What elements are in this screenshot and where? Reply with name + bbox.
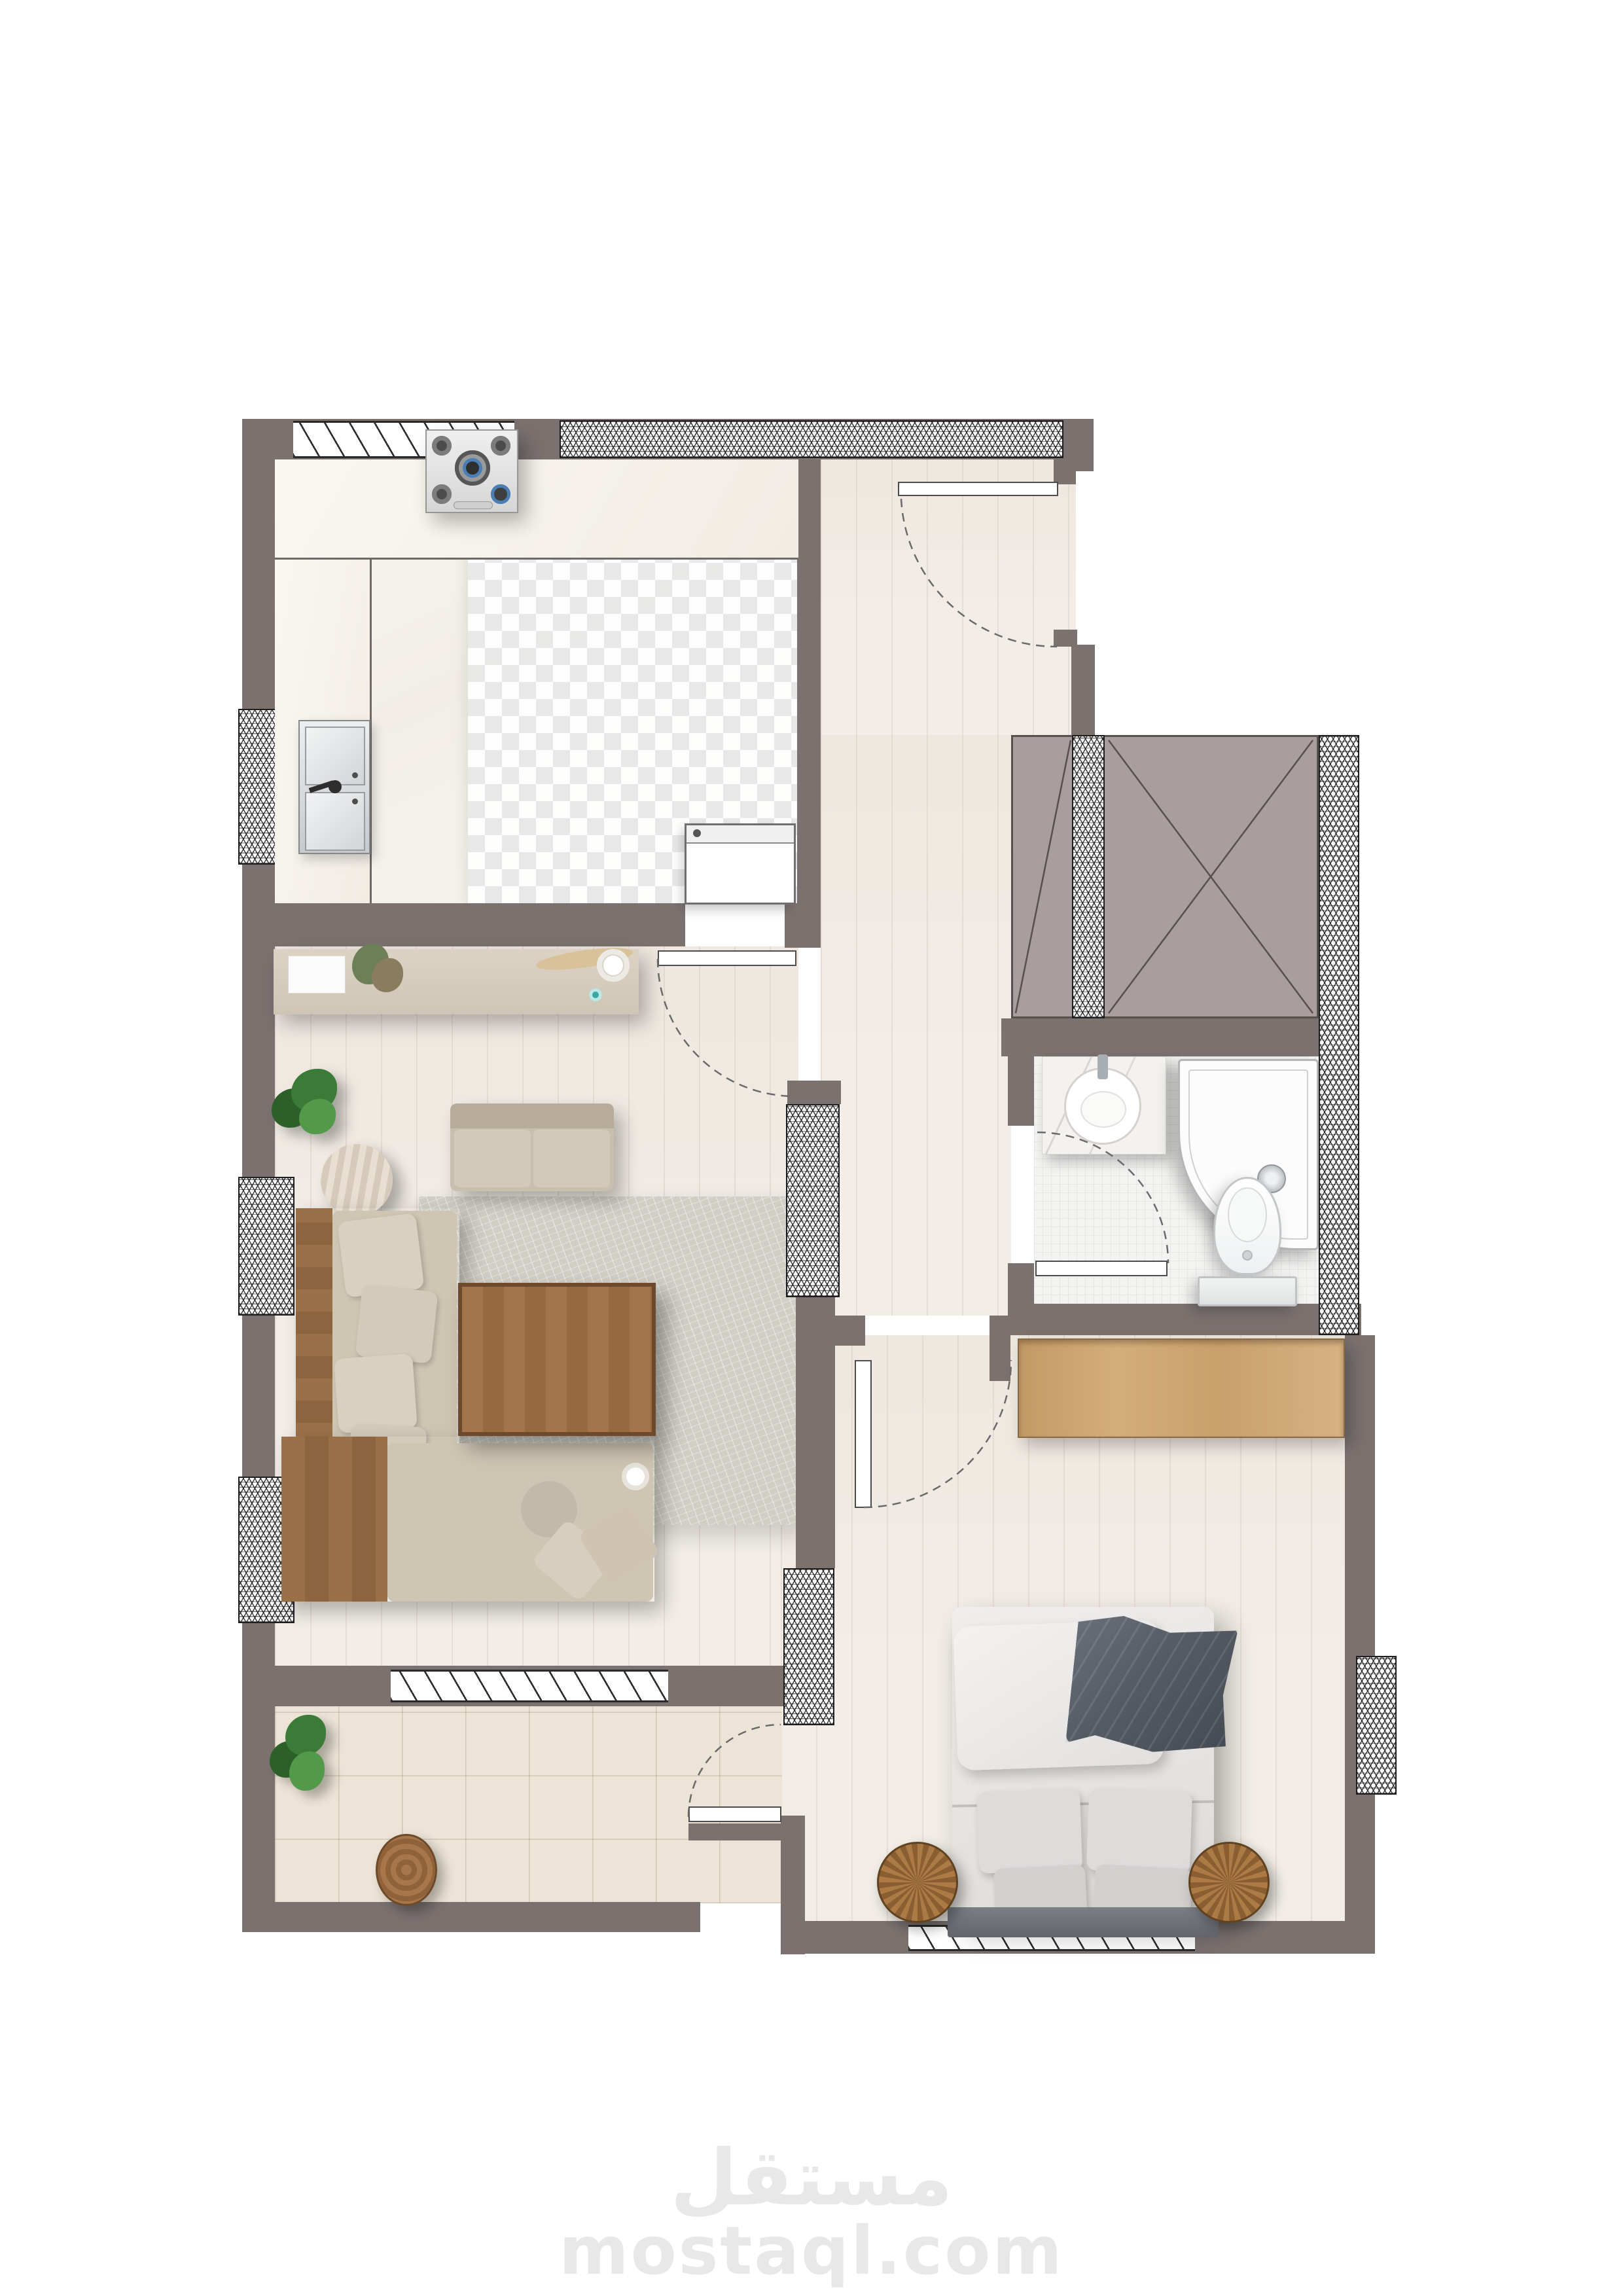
kitchen-appliance [685, 823, 796, 905]
bedroom-door-leaf [855, 1360, 872, 1508]
bed-base-headboard [948, 1907, 1219, 1937]
console-plate-icon [597, 949, 630, 982]
stove-burner-blue-icon [491, 484, 510, 504]
elevator-shaft [1011, 735, 1319, 1018]
balcony-plant [270, 1715, 329, 1806]
appliance-handle-icon [693, 829, 701, 837]
wall-living-bedroom-separator [796, 1346, 835, 1568]
plant-leaves-icon [289, 1751, 325, 1791]
loveseat-cushion [533, 1130, 610, 1187]
loveseat-sofa [450, 1103, 614, 1191]
wall-kitchen-door-jamb [785, 903, 821, 948]
hatch-shaft-middle-column [1072, 735, 1105, 1018]
loveseat-cushion [454, 1130, 531, 1187]
stove-control-strip [454, 501, 493, 509]
nightstand-right [1188, 1842, 1270, 1923]
wall-kitchen-door-stop [787, 1081, 841, 1104]
wall-entry-stub [1071, 645, 1095, 736]
bed-pillow [976, 1789, 1082, 1873]
kitchen-stove [425, 429, 518, 513]
sofa-cup-icon [622, 1463, 649, 1490]
watermark-domain: mostaql.com [0, 2216, 1623, 2286]
stove-burner-icon [432, 484, 452, 504]
hallway-floor-lower [821, 735, 1011, 1316]
stove-center-burner-icon [455, 450, 490, 486]
wall-bathroom-top [1001, 1018, 1319, 1056]
wall-bathroom-bottom [1008, 1304, 1361, 1335]
console-teal-dot-icon [589, 988, 602, 1001]
plant-leaves-icon [285, 1715, 326, 1755]
hatch-hall-living-column [786, 1104, 840, 1297]
kitchen-counter-top [275, 459, 798, 560]
wall-entry-jamb [1054, 458, 1076, 484]
stove-burner-icon [491, 436, 510, 456]
kitchen-sink [298, 720, 370, 854]
wall-bedroom-door-cap [796, 1316, 865, 1346]
wall-kitchen-hall-separator [797, 459, 821, 905]
loveseat-back [450, 1103, 614, 1128]
wall-balcony-door-stub [688, 1823, 782, 1840]
wall-bathroom-left-upper [1008, 1056, 1034, 1126]
bedroom-wardrobe [1018, 1338, 1345, 1438]
balcony-table [376, 1834, 437, 1906]
wall-left-exterior [242, 419, 275, 1932]
bathroom-door-leaf [1035, 1261, 1168, 1276]
hatch-right-exterior-column [1319, 735, 1359, 1335]
wall-bedroom-door-stub [990, 1316, 1010, 1381]
bed-pillow [1086, 1789, 1192, 1873]
plant-leaves-icon [299, 1099, 336, 1134]
sink-knob-icon [352, 772, 358, 778]
sectional-sofa-horizontal [281, 1437, 654, 1602]
sofa-wood-platform [281, 1437, 387, 1602]
bath-faucet-icon [1097, 1054, 1108, 1079]
balcony-window [391, 1670, 668, 1702]
watermark: مستقل mostaql.com [0, 2139, 1623, 2286]
wall-bedroom-right [1345, 1335, 1375, 1954]
toilet-tank [1198, 1276, 1297, 1306]
console-plant-icon [372, 958, 403, 992]
wall-kitchen-bottom [242, 903, 685, 946]
console-decor-box [288, 956, 346, 994]
entrance-door-leaf [898, 482, 1058, 496]
living-plant [272, 1069, 340, 1147]
toilet [1198, 1177, 1297, 1306]
wall-hall-living-mid [796, 1295, 835, 1318]
sofa-pillow [355, 1284, 438, 1364]
sofa-pillow [334, 1354, 418, 1433]
wall-balcony-bottom [242, 1902, 700, 1932]
toilet-button-icon [1242, 1250, 1253, 1261]
balcony-door-leaf [688, 1806, 781, 1822]
stove-burner-icon [432, 436, 452, 456]
hatch-bedroom-right-column [1356, 1656, 1397, 1795]
floor-plan-canvas: مستقل mostaql.com [0, 0, 1623, 2296]
balcony-floor [275, 1706, 782, 1903]
sink-basin-inner [1080, 1091, 1126, 1128]
sink-knob-icon [352, 798, 358, 804]
nightstand-left [877, 1842, 958, 1923]
kitchen-door-leaf [658, 950, 796, 966]
hatch-top-wall [560, 420, 1063, 458]
sofa-pillow [337, 1213, 424, 1298]
watermark-arabic-logo: مستقل [0, 2139, 1623, 2216]
console-sideboard [274, 949, 639, 1014]
coffee-table [458, 1283, 656, 1436]
hatch-balcony-door-column [783, 1568, 834, 1725]
hallway-floor-upper [821, 459, 1076, 735]
toilet-bowl-inner [1228, 1187, 1267, 1242]
appliance-panel [687, 825, 794, 844]
living-side-table [321, 1144, 393, 1216]
hatch-left-living-column-1 [238, 1177, 294, 1316]
bathroom-sink-counter [1042, 1056, 1166, 1155]
